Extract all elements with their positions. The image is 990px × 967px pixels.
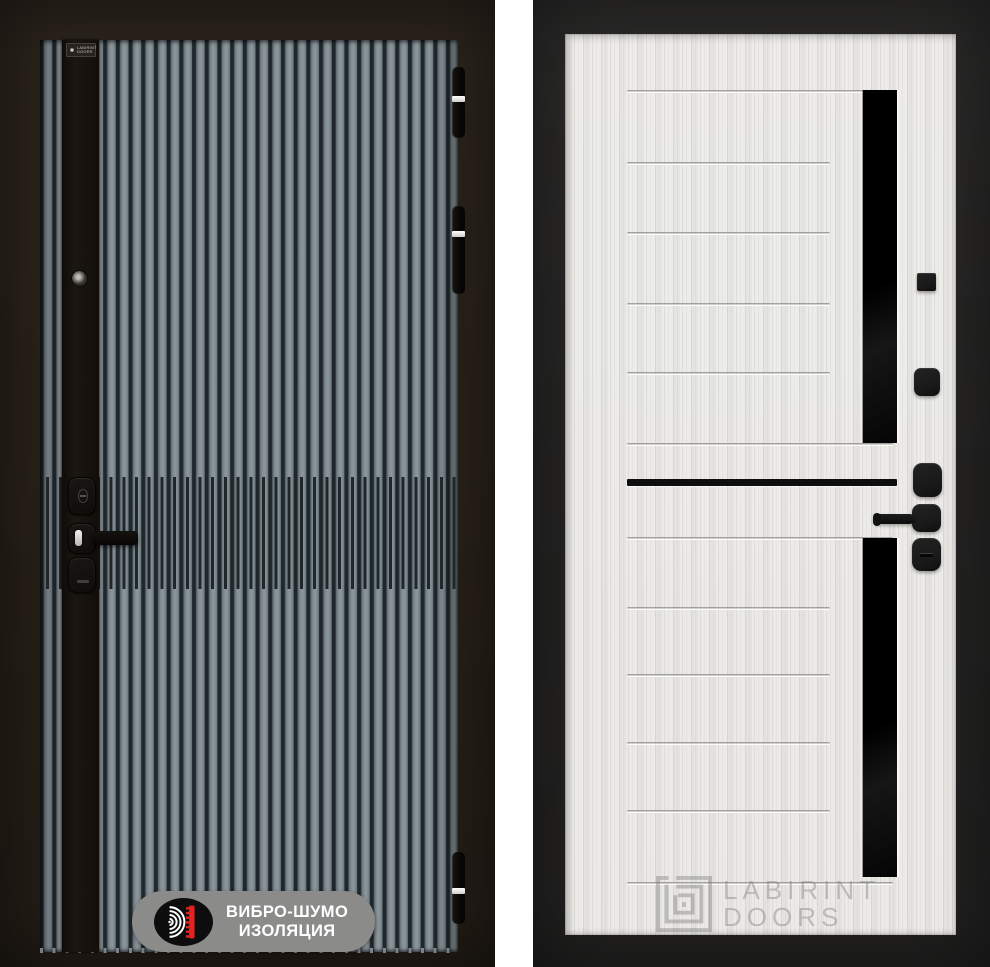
door-handle-lever (873, 514, 915, 524)
brand-plate-text: LABIRINT DOORS (77, 46, 97, 55)
panel-groove-line (627, 303, 830, 306)
lock-escutcheon (913, 463, 942, 497)
labirint-logo-icon (69, 47, 75, 53)
deadbolt-knob (914, 368, 940, 396)
labirint-maze-logo-icon (655, 875, 713, 933)
lower-lock-cylinder (68, 557, 96, 593)
right-door-photo: LABIRINT DOORS (533, 0, 990, 967)
glass-insert-upper (863, 90, 897, 443)
hinge-bottom (452, 852, 465, 924)
cylinder-cover (917, 273, 936, 291)
brand-plate: LABIRINT DOORS (66, 43, 96, 57)
badge-text: ВИБРО-ШУМО ИЗОЛЯЦИЯ (226, 903, 348, 940)
keyhole-slot-icon (77, 580, 89, 583)
panel-groove-line (627, 232, 830, 235)
peephole-icon (71, 270, 88, 287)
left-door-photo: LABIRINT DOORS (0, 0, 495, 967)
watermark-text: LABIRINT DOORS (723, 877, 880, 931)
handle-base (912, 504, 941, 532)
hinge-ring (452, 96, 465, 102)
watermark: LABIRINT DOORS (655, 875, 880, 933)
sound-wave-insulation-icon (154, 898, 213, 946)
panel-groove-line (627, 162, 830, 165)
vibro-noise-insulation-badge: ВИБРО-ШУМО ИЗОЛЯЦИЯ (132, 891, 375, 952)
panel-groove-line (627, 742, 830, 745)
badge-text-line2: ИЗОЛЯЦИЯ (239, 922, 336, 940)
hinge-ring (452, 231, 465, 237)
lock-cylinder (912, 538, 941, 571)
hinge-top (452, 67, 465, 138)
panel-groove-line (627, 90, 893, 93)
thumbturn (75, 530, 82, 546)
keyhole-icon (78, 489, 88, 503)
keyhole-slot-icon (920, 554, 933, 557)
hinge-ring (452, 888, 465, 894)
black-accent-line (627, 479, 897, 486)
panel-groove-line (627, 372, 830, 375)
panel-groove-line (627, 443, 893, 446)
hinge-middle (452, 206, 465, 294)
panel-groove-line (627, 674, 830, 677)
panel-groove-line (627, 810, 830, 813)
door-handle-lever (92, 531, 138, 545)
glass-insert-lower (863, 538, 897, 877)
panel-groove-line (627, 537, 893, 540)
badge-text-line1: ВИБРО-ШУМО (226, 903, 348, 921)
product-photo-two-doors: LABIRINT DOORS (0, 0, 990, 967)
upper-lock-cylinder (68, 477, 96, 515)
door-panel: LABIRINT DOORS (565, 34, 956, 935)
panel-groove-line (627, 607, 830, 610)
